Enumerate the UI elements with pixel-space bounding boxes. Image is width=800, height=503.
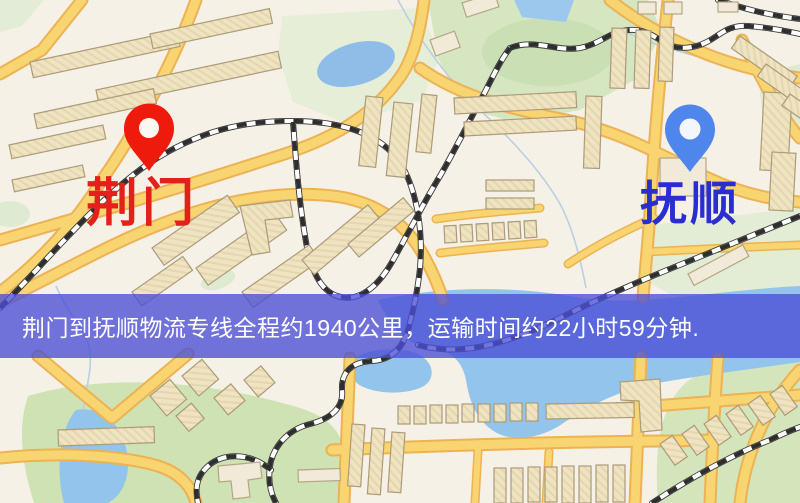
map-canvas: 荆门 抚顺 [0,0,800,503]
origin-pin-hole [139,118,159,138]
route-banner-text: 荆门到抚顺物流专线全程约1940公里，运输时间约22小时59分钟. [22,309,699,343]
destination-label: 抚顺 [640,177,740,230]
logistics-route-map: 荆门 抚顺 荆门到抚顺物流专线全程约1940公里，运输时间约22小时59分钟. [0,0,800,503]
destination-pin-hole [680,119,701,140]
origin-label: 荆门 [86,175,198,233]
route-banner: 荆门到抚顺物流专线全程约1940公里，运输时间约22小时59分钟. [0,294,800,358]
